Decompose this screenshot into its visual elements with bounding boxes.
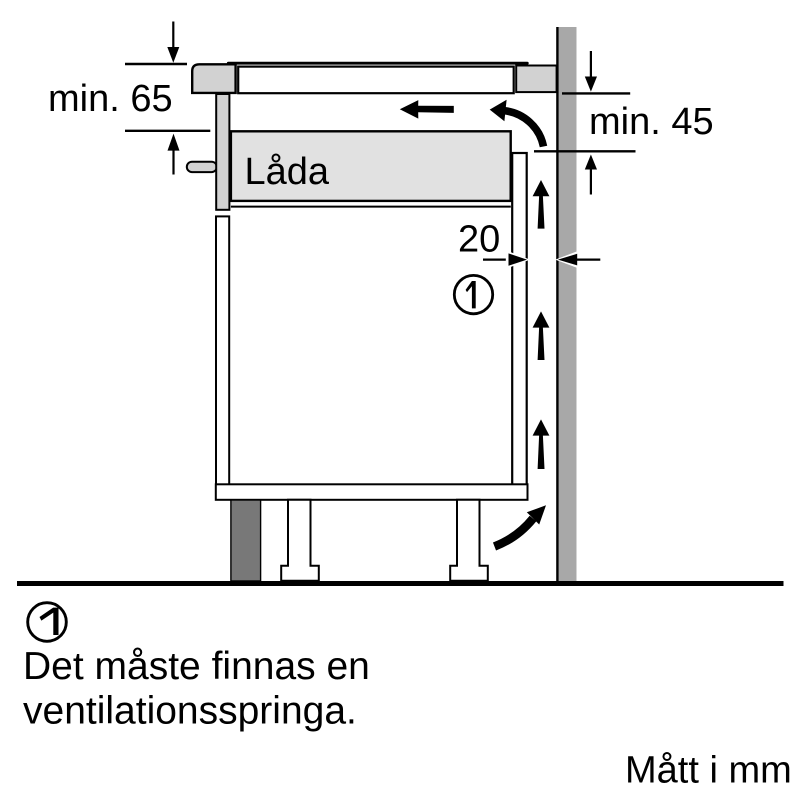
svg-text:Mått i mm: Mått i mm (625, 750, 792, 792)
svg-text:Det måste finnas en: Det måste finnas en (23, 645, 370, 688)
svg-text:ventilationsspringa.: ventilationsspringa. (23, 690, 357, 733)
svg-text:20: 20 (458, 219, 500, 261)
svg-text:min. 45: min. 45 (589, 101, 714, 143)
svg-text:min. 65: min. 65 (48, 78, 173, 120)
svg-text:Låda: Låda (245, 151, 330, 193)
